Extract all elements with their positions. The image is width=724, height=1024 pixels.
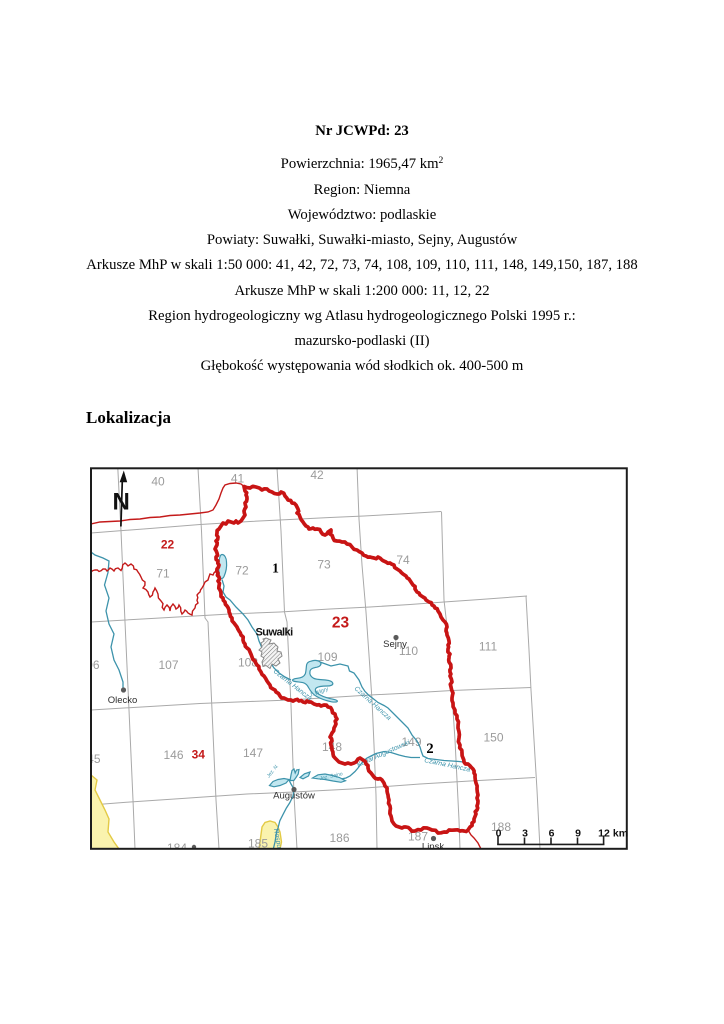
svg-text:150: 150 — [483, 731, 503, 745]
svg-text:Augustów: Augustów — [273, 791, 315, 802]
svg-text:N: N — [113, 489, 130, 516]
svg-text:Suwalki: Suwalki — [256, 627, 294, 639]
svg-text:9: 9 — [575, 828, 581, 840]
svg-text:106: 106 — [79, 658, 99, 672]
svg-text:12: 12 — [598, 828, 610, 840]
svg-text:Olecko: Olecko — [108, 695, 138, 706]
svg-text:23: 23 — [332, 615, 350, 632]
svg-text:6: 6 — [549, 828, 555, 840]
svg-text:147: 147 — [243, 746, 263, 760]
svg-text:Lipsk: Lipsk — [422, 842, 444, 853]
svg-text:186: 186 — [329, 831, 349, 845]
svg-text:111: 111 — [479, 640, 498, 654]
svg-text:72: 72 — [235, 564, 249, 578]
svg-text:Sejny: Sejny — [383, 639, 407, 650]
svg-text:Jez. N.: Jez. N. — [265, 763, 280, 780]
svg-text:0: 0 — [496, 828, 502, 840]
svg-text:107: 107 — [158, 658, 178, 672]
svg-text:22: 22 — [161, 538, 175, 552]
svg-text:2: 2 — [426, 741, 433, 757]
svg-text:73: 73 — [317, 558, 331, 572]
svg-text:3: 3 — [522, 828, 528, 840]
svg-text:71: 71 — [156, 567, 170, 581]
svg-text:74: 74 — [396, 553, 410, 567]
svg-text:40: 40 — [151, 475, 165, 489]
svg-text:34: 34 — [192, 747, 206, 761]
svg-text:42: 42 — [310, 468, 324, 482]
svg-text:146: 146 — [163, 748, 183, 762]
svg-text:1: 1 — [272, 561, 279, 576]
svg-text:km: km — [613, 828, 628, 840]
